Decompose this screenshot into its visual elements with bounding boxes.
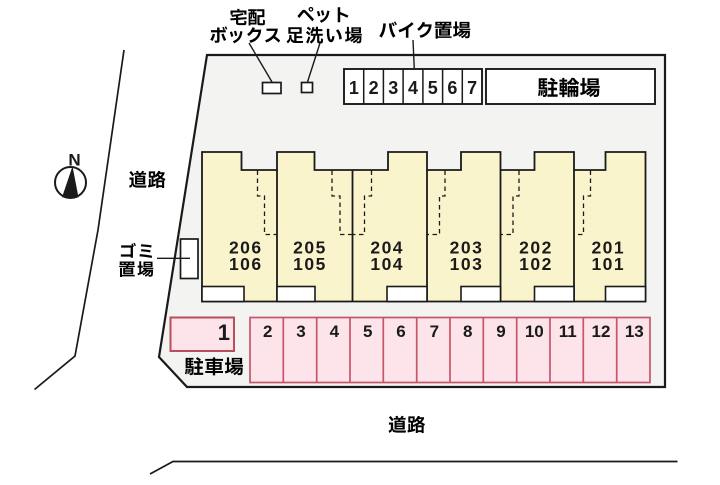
svg-text:103: 103 bbox=[450, 254, 484, 274]
svg-text:7: 7 bbox=[467, 78, 477, 98]
svg-text:3: 3 bbox=[296, 322, 305, 341]
svg-text:106: 106 bbox=[229, 254, 263, 274]
svg-text:13: 13 bbox=[625, 322, 644, 341]
svg-text:101: 101 bbox=[591, 254, 625, 274]
svg-text:7: 7 bbox=[430, 322, 439, 341]
svg-text:102: 102 bbox=[519, 254, 553, 274]
svg-text:N: N bbox=[68, 151, 80, 170]
svg-text:6: 6 bbox=[447, 78, 457, 98]
svg-text:3: 3 bbox=[388, 78, 398, 98]
svg-text:2: 2 bbox=[263, 322, 272, 341]
svg-text:1: 1 bbox=[218, 320, 230, 345]
svg-text:12: 12 bbox=[592, 322, 611, 341]
svg-text:4: 4 bbox=[408, 78, 418, 98]
svg-text:4: 4 bbox=[330, 322, 340, 341]
svg-text:105: 105 bbox=[293, 254, 327, 274]
svg-text:5: 5 bbox=[363, 322, 372, 341]
svg-text:8: 8 bbox=[463, 322, 472, 341]
svg-text:2: 2 bbox=[369, 78, 379, 98]
svg-text:104: 104 bbox=[370, 254, 404, 274]
svg-text:1: 1 bbox=[349, 78, 359, 98]
svg-text:5: 5 bbox=[428, 78, 438, 98]
svg-text:10: 10 bbox=[525, 322, 544, 341]
svg-text:9: 9 bbox=[496, 322, 505, 341]
svg-text:6: 6 bbox=[396, 322, 405, 341]
svg-text:11: 11 bbox=[559, 322, 577, 341]
